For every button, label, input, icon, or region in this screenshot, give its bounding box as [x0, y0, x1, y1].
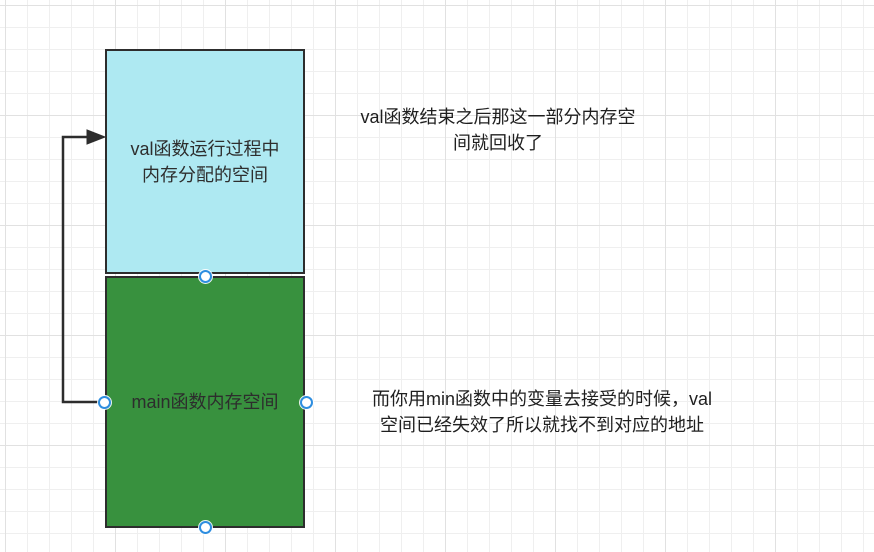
recycle-annotation[interactable]: val函数结束之后那这一部分内存空 间就回收了 — [345, 104, 651, 156]
connection-handle-left[interactable] — [98, 396, 111, 409]
val-box-label: val函数运行过程中 内存分配的空间 — [130, 136, 279, 188]
main-memory-box[interactable]: main函数内存空间 — [105, 276, 305, 528]
val-memory-box[interactable]: val函数运行过程中 内存分配的空间 — [105, 49, 305, 274]
connection-handle-right[interactable] — [300, 396, 313, 409]
arrow-head-icon — [87, 130, 105, 144]
note-line: 间就回收了 — [345, 130, 651, 156]
connection-handle-top[interactable] — [199, 270, 212, 283]
note-line: 空间已经失效了所以就找不到对应的地址 — [348, 412, 736, 438]
invalid-address-annotation[interactable]: 而你用min函数中的变量去接受的时候，val 空间已经失效了所以就找不到对应的地… — [348, 386, 736, 438]
diagram-canvas[interactable]: val函数运行过程中 内存分配的空间 main函数内存空间 val函数结束之后那… — [0, 0, 874, 552]
arrow-line[interactable] — [63, 137, 104, 402]
label-line: val函数运行过程中 — [130, 136, 279, 162]
label-line: 内存分配的空间 — [130, 162, 279, 188]
note-line: val函数结束之后那这一部分内存空 — [345, 104, 651, 130]
note-line: 而你用min函数中的变量去接受的时候，val — [348, 386, 736, 412]
main-box-label: main函数内存空间 — [131, 389, 278, 415]
connection-handle-bottom[interactable] — [199, 521, 212, 534]
